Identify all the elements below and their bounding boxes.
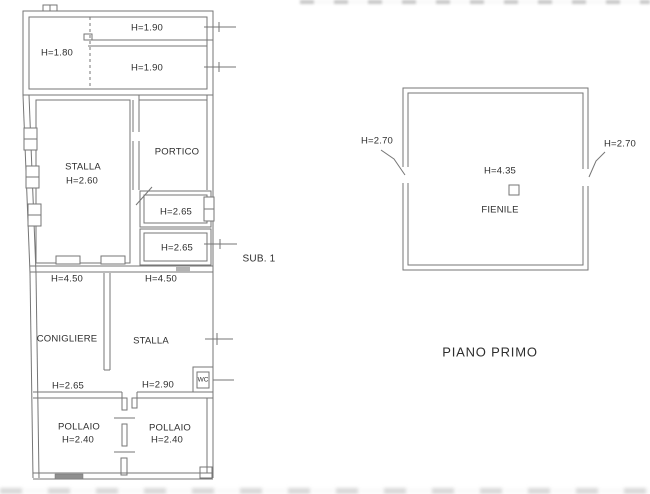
room-label-pollaio-right: POLLAIO (149, 423, 191, 434)
plan-linework (0, 0, 650, 494)
label-sub-unit: SUB. 1 (243, 254, 276, 265)
first-floor-plan (381, 88, 605, 270)
label-stalla-height: H=2.60 (66, 176, 98, 187)
label-wall-left-height: H=2.70 (361, 136, 393, 147)
scan-artifact-top (300, 0, 650, 4)
label-wall-right-height: H=2.70 (604, 139, 636, 150)
label-span-right: H=4.50 (145, 274, 177, 285)
column-symbol (509, 185, 519, 195)
room-label-wc: WC (198, 377, 209, 384)
label-span-left: H=4.50 (51, 274, 83, 285)
label-room-a-height: H=2.65 (160, 207, 192, 218)
room-label-stalla-lower: STALLA (133, 336, 169, 347)
door-jamb (132, 398, 137, 408)
label-room-b-height: H=2.65 (161, 243, 193, 254)
room-label-conigliere: CONIGLIERE (37, 334, 98, 345)
room-label-portico: PORTICO (155, 147, 200, 158)
label-attic-upper-height: H=1.90 (131, 23, 163, 34)
door-threshold (56, 256, 80, 264)
door-jamb (122, 398, 127, 410)
leader-line-right (589, 152, 605, 177)
label-pollaio-left-height: H=2.40 (62, 435, 94, 446)
room-label-fienile: FIENILE (481, 205, 518, 216)
label-attic-left-height: H=1.80 (41, 48, 73, 59)
door-threshold (101, 256, 125, 264)
label-attic-lower-height: H=1.90 (131, 63, 163, 74)
label-conigliere-height: H=2.65 (52, 381, 84, 392)
room-label-stalla: STALLA (65, 162, 101, 173)
scan-artifact-bottom (0, 488, 650, 494)
ground-floor-plan (23, 5, 237, 479)
label-stalla-lower-height: H=2.90 (142, 380, 174, 391)
floor-plan-drawing: H=1.80 H=1.90 H=1.90 STALLA H=2.60 PORTI… (0, 0, 650, 494)
label-pollaio-right-height: H=2.40 (151, 435, 183, 446)
room-label-pollaio-left: POLLAIO (58, 422, 100, 433)
floor-title-piano-primo: PIANO PRIMO (442, 345, 537, 360)
label-fienile-height: H=4.35 (484, 166, 516, 177)
